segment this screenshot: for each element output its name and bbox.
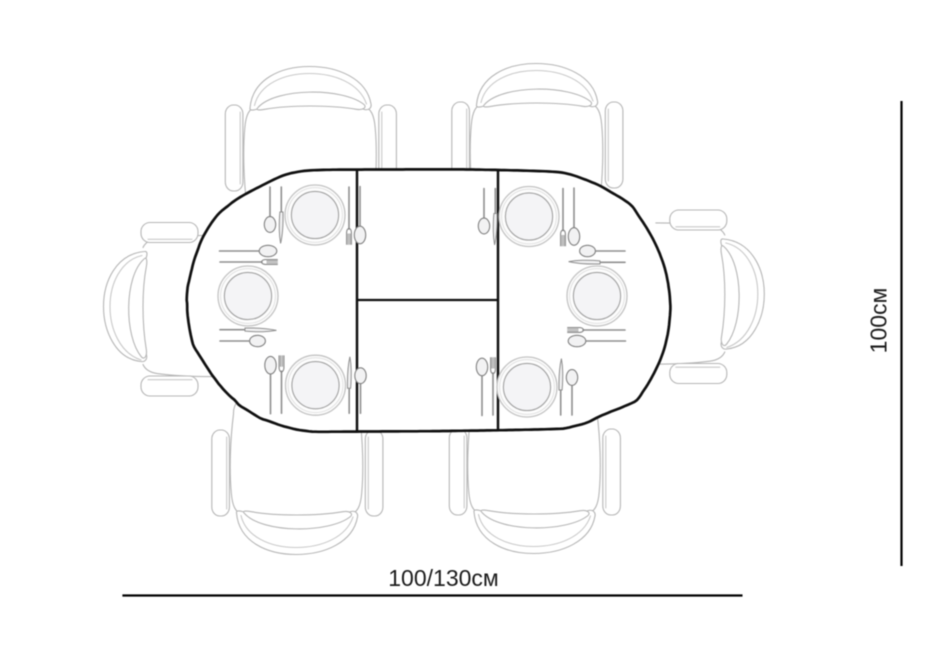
svg-text:100/130см: 100/130см: [388, 565, 498, 591]
svg-text:100см: 100см: [866, 288, 892, 354]
